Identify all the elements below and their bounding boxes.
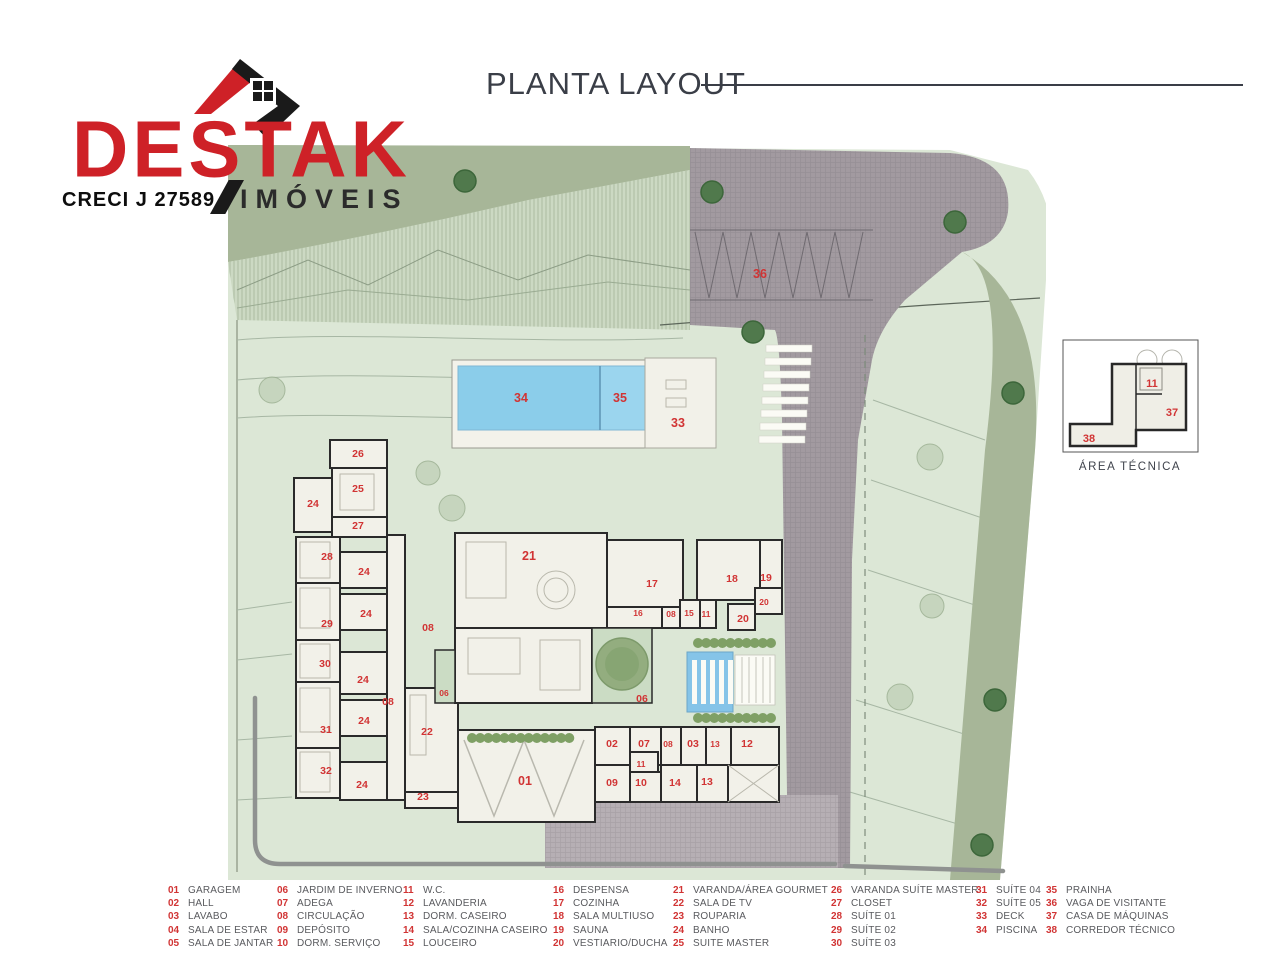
- deck: [645, 358, 716, 448]
- legend-item: 17COZINHA: [553, 897, 668, 910]
- legend-item: 06JARDIM DE INVERNO: [277, 884, 403, 897]
- legend-column: 11W.C.12LAVANDERIA13DORM. CASEIRO14SALA/…: [403, 884, 548, 950]
- legend-item: 03LAVABO: [168, 910, 273, 923]
- legend-item: 25SUITE MASTER: [673, 937, 828, 950]
- creci-number: CRECI J 27589: [62, 190, 215, 210]
- pool-terrace: [452, 358, 716, 448]
- legend-number: 17: [553, 898, 569, 909]
- legend-item: 19SAUNA: [553, 924, 668, 937]
- legend-label: ADEGA: [297, 898, 333, 909]
- legend-label: DORM. CASEIRO: [423, 911, 507, 922]
- legend-number: 33: [976, 911, 992, 922]
- legend-number: 10: [277, 938, 293, 949]
- room-number: 11: [702, 609, 711, 619]
- legend-number: 31: [976, 885, 992, 896]
- legend-number: 38: [1046, 925, 1062, 936]
- room-number: 17: [646, 578, 658, 590]
- brand-logo: DESTAK CRECI J 27589 IMÓVEIS: [58, 52, 448, 222]
- legend-item: 24BANHO: [673, 924, 828, 937]
- room-number: 01: [518, 774, 532, 788]
- page: 3634353326252427282424290830240608243122…: [0, 0, 1280, 960]
- legend-number: 04: [168, 925, 184, 936]
- legend-item: 09DEPÓSITO: [277, 924, 403, 937]
- room-number: 32: [320, 765, 332, 777]
- legend-item: 16DESPENSA: [553, 884, 668, 897]
- legend-label: LOUCEIRO: [423, 938, 477, 949]
- legend-item: 32SUÍTE 05: [976, 897, 1041, 910]
- legend-number: 12: [403, 898, 419, 909]
- legend-number: 14: [403, 925, 419, 936]
- room-number: 35: [613, 391, 627, 405]
- room-number: 20: [737, 613, 749, 625]
- legend-column: 21VARANDA/ÁREA GOURMET22SALA DE TV23ROUP…: [673, 884, 828, 950]
- legend-number: 02: [168, 898, 184, 909]
- legend-label: COZINHA: [573, 898, 619, 909]
- legend-label: VARANDA SUÍTE MASTER: [851, 885, 979, 896]
- legend-item: 04SALA DE ESTAR: [168, 924, 273, 937]
- room-number: 19: [760, 572, 772, 584]
- title-rule: [701, 84, 1243, 86]
- room-number: 29: [321, 618, 333, 630]
- legend-label: SALA DE TV: [693, 898, 752, 909]
- legend-number: 34: [976, 925, 992, 936]
- legend-label: CORREDOR TÉCNICO: [1066, 925, 1175, 936]
- legend-item: 20VESTIARIO/DUCHA: [553, 937, 668, 950]
- legend-item: 10DORM. SERVIÇO: [277, 937, 403, 950]
- legend-item: 02HALL: [168, 897, 273, 910]
- legend-number: 28: [831, 911, 847, 922]
- legend-label: VAGA DE VISITANTE: [1066, 898, 1166, 909]
- room-number: 03: [687, 738, 699, 750]
- legend-label: PISCINA: [996, 925, 1037, 936]
- legend-number: 23: [673, 911, 689, 922]
- legend-item: 34PISCINA: [976, 924, 1041, 937]
- pool: [458, 366, 600, 430]
- room-number: 18: [726, 573, 738, 585]
- brand-name: DESTAK: [72, 109, 411, 189]
- legend-number: 05: [168, 938, 184, 949]
- legend-item: 23ROUPARIA: [673, 910, 828, 923]
- legend-item: 31SUÍTE 04: [976, 884, 1041, 897]
- brand-subtitle: IMÓVEIS: [240, 186, 409, 213]
- legend-item: 35PRAINHA: [1046, 884, 1175, 897]
- legend-label: HALL: [188, 898, 214, 909]
- legend-number: 29: [831, 925, 847, 936]
- legend-number: 32: [976, 898, 992, 909]
- legend-label: W.C.: [423, 885, 445, 896]
- room-number: 24: [307, 498, 319, 510]
- legend-number: 24: [673, 925, 689, 936]
- room-number: 27: [352, 520, 364, 532]
- legend-label: DESPENSA: [573, 885, 629, 896]
- room-number: 06: [439, 688, 449, 698]
- legend-number: 25: [673, 938, 689, 949]
- room-number: 20: [759, 597, 769, 607]
- legend-number: 11: [403, 885, 419, 896]
- room-number: 15: [684, 608, 694, 618]
- winter-garden: [592, 628, 652, 703]
- room-number: 09: [606, 777, 618, 789]
- room-number: 28: [321, 551, 333, 563]
- legend-label: SALA DE ESTAR: [188, 925, 268, 936]
- legend-label: LAVABO: [188, 911, 228, 922]
- legend-number: 26: [831, 885, 847, 896]
- legend-label: JARDIM DE INVERNO: [297, 885, 403, 896]
- legend-label: SALA DE JANTAR: [188, 938, 273, 949]
- room-number: 24: [356, 779, 368, 791]
- legend-number: 20: [553, 938, 569, 949]
- legend-number: 07: [277, 898, 293, 909]
- legend-item: 30SUÍTE 03: [831, 937, 979, 950]
- legend-item: 13DORM. CASEIRO: [403, 910, 548, 923]
- legend-label: DORM. SERVIÇO: [297, 938, 381, 949]
- legend-label: PRAINHA: [1066, 885, 1112, 896]
- legend-label: SUÍTE 03: [851, 938, 896, 949]
- legend-label: VARANDA/ÁREA GOURMET: [693, 885, 828, 896]
- legend-label: SUÍTE 01: [851, 911, 896, 922]
- legend-number: 36: [1046, 898, 1062, 909]
- legend-item: 33DECK: [976, 910, 1041, 923]
- legend-label: CLOSET: [851, 898, 892, 909]
- legend-item: 27CLOSET: [831, 897, 979, 910]
- legend-number: 16: [553, 885, 569, 896]
- legend-item: 01GARAGEM: [168, 884, 273, 897]
- room-number: 34: [514, 391, 528, 405]
- legend-label: SUÍTE 02: [851, 925, 896, 936]
- room-number: 24: [360, 608, 372, 620]
- legend-number: 18: [553, 911, 569, 922]
- inset-caption: ÁREA TÉCNICA: [1079, 460, 1181, 473]
- legend-label: SUITE MASTER: [693, 938, 769, 949]
- room-number: 36: [753, 267, 767, 281]
- area-tecnica-inset: 113738 ÁREA TÉCNICA: [1062, 338, 1204, 480]
- legend-item: 18SALA MULTIUSO: [553, 910, 668, 923]
- room-number: 13: [710, 739, 720, 749]
- legend-column: 16DESPENSA17COZINHA18SALA MULTIUSO19SAUN…: [553, 884, 668, 950]
- legend-item: 14SALA/COZINHA CASEIRO: [403, 924, 548, 937]
- room-number: 13: [701, 776, 713, 788]
- legend-number: 03: [168, 911, 184, 922]
- legend-label: CASA DE MÁQUINAS: [1066, 911, 1169, 922]
- legend-item: 11W.C.: [403, 884, 548, 897]
- room-number: 08: [382, 696, 394, 708]
- legend-item: 08CIRCULAÇÃO: [277, 910, 403, 923]
- legend-label: DEPÓSITO: [297, 925, 350, 936]
- room-number: 07: [638, 738, 650, 750]
- legend-label: VESTIARIO/DUCHA: [573, 938, 668, 949]
- legend-item: 22SALA DE TV: [673, 897, 828, 910]
- legend-column: 31SUÍTE 0432SUÍTE 0533DECK34PISCINA: [976, 884, 1041, 937]
- legend-number: 30: [831, 938, 847, 949]
- legend-item: 37CASA DE MÁQUINAS: [1046, 910, 1175, 923]
- legend-label: CIRCULAÇÃO: [297, 911, 365, 922]
- room-number: 12: [741, 738, 753, 750]
- room-number: 08: [666, 609, 676, 619]
- legend-label: SUÍTE 05: [996, 898, 1041, 909]
- room-number: 02: [606, 738, 618, 750]
- legend-number: 35: [1046, 885, 1062, 896]
- room-number: 30: [319, 658, 331, 670]
- legend-label: SALA MULTIUSO: [573, 911, 654, 922]
- legend-item: 38CORREDOR TÉCNICO: [1046, 924, 1175, 937]
- legend-item: 15LOUCEIRO: [403, 937, 548, 950]
- room-number: 24: [358, 715, 370, 727]
- legend-number: 13: [403, 911, 419, 922]
- legend-column: 06JARDIM DE INVERNO07ADEGA08CIRCULAÇÃO09…: [277, 884, 403, 950]
- legend-label: SALA/COZINHA CASEIRO: [423, 925, 548, 936]
- legend-number: 09: [277, 925, 293, 936]
- legend-item: 29SUÍTE 02: [831, 924, 979, 937]
- legend-number: 19: [553, 925, 569, 936]
- room-number: 11: [637, 759, 646, 769]
- legend-label: DECK: [996, 911, 1025, 922]
- room-number: 23: [417, 791, 429, 803]
- legend-item: 36VAGA DE VISITANTE: [1046, 897, 1175, 910]
- room-number: 38: [1083, 433, 1095, 445]
- legend-number: 15: [403, 938, 419, 949]
- room-number: 16: [633, 608, 643, 618]
- legend-label: GARAGEM: [188, 885, 241, 896]
- legend-number: 08: [277, 911, 293, 922]
- legend-column: 01GARAGEM02HALL03LAVABO04SALA DE ESTAR05…: [168, 884, 273, 950]
- room-number: 24: [357, 674, 369, 686]
- room-number: 08: [422, 622, 434, 634]
- legend-number: 21: [673, 885, 689, 896]
- legend-column: 35PRAINHA36VAGA DE VISITANTE37CASA DE MÁ…: [1046, 884, 1175, 937]
- room-number: 10: [635, 777, 647, 789]
- room-number: 21: [522, 549, 536, 563]
- legend-number: 22: [673, 898, 689, 909]
- legend-number: 06: [277, 885, 293, 896]
- room-number: 25: [352, 483, 364, 495]
- room-number: 14: [669, 777, 681, 789]
- legend-item: 21VARANDA/ÁREA GOURMET: [673, 884, 828, 897]
- room-number: 11: [1146, 378, 1158, 390]
- site-plan: 3634353326252427282424290830240608243122…: [228, 140, 1046, 882]
- room-number: 22: [421, 726, 433, 738]
- room-number: 06: [636, 693, 648, 705]
- legend-label: SAUNA: [573, 925, 608, 936]
- legend-number: 01: [168, 885, 184, 896]
- legend-label: ROUPARIA: [693, 911, 746, 922]
- legend-column: 26VARANDA SUÍTE MASTER27CLOSET28SUÍTE 01…: [831, 884, 979, 950]
- room-number: 33: [671, 416, 685, 430]
- legend-label: BANHO: [693, 925, 730, 936]
- legend-number: 37: [1046, 911, 1062, 922]
- legend-item: 07ADEGA: [277, 897, 403, 910]
- room-number: 24: [358, 566, 370, 578]
- legend: 01GARAGEM02HALL03LAVABO04SALA DE ESTAR05…: [0, 884, 1280, 956]
- room-number: 31: [320, 724, 332, 736]
- legend-number: 27: [831, 898, 847, 909]
- legend-item: 12LAVANDERIA: [403, 897, 548, 910]
- room-number: 26: [352, 448, 364, 460]
- legend-label: SUÍTE 04: [996, 885, 1041, 896]
- room-number: 08: [663, 739, 673, 749]
- legend-label: LAVANDERIA: [423, 898, 487, 909]
- legend-item: 28SUÍTE 01: [831, 910, 979, 923]
- legend-item: 05SALA DE JANTAR: [168, 937, 273, 950]
- legend-item: 26VARANDA SUÍTE MASTER: [831, 884, 979, 897]
- room-number: 37: [1166, 407, 1178, 419]
